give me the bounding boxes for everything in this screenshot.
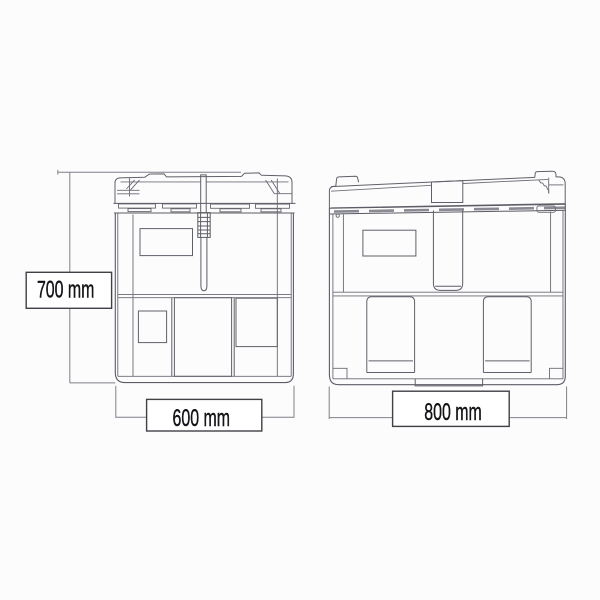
- svg-text:800 mm: 800 mm: [424, 399, 482, 426]
- svg-text:700 mm: 700 mm: [37, 277, 95, 304]
- svg-text:600 mm: 600 mm: [173, 405, 231, 432]
